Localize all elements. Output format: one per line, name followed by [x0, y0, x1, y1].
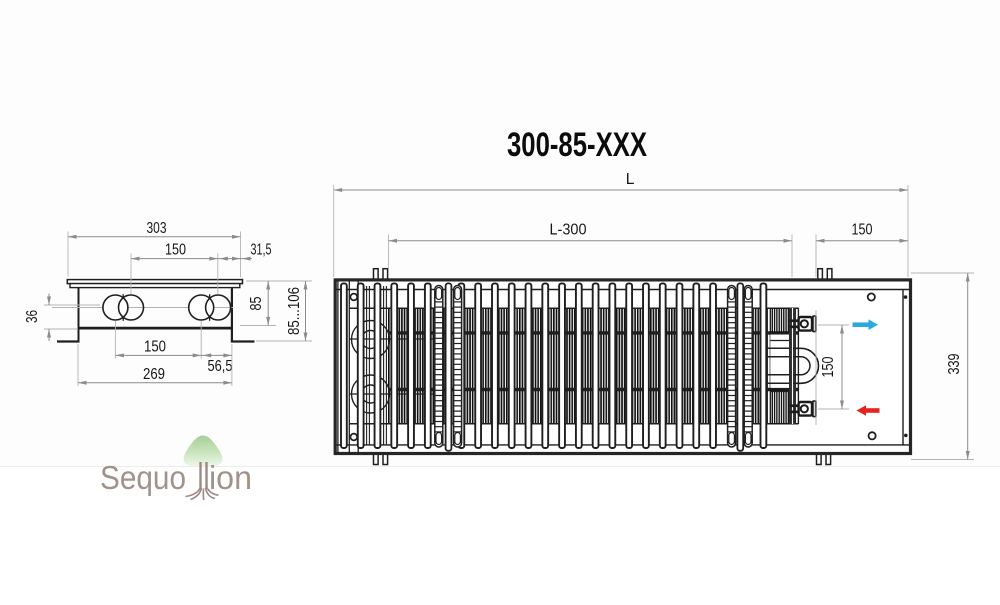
svg-text:L: L: [626, 171, 635, 188]
svg-text:Sequo: Sequo: [100, 459, 186, 496]
svg-text:150: 150: [852, 222, 873, 239]
svg-text:L-300: L-300: [550, 222, 587, 239]
svg-text:85: 85: [248, 297, 265, 311]
svg-text:31,5: 31,5: [251, 242, 272, 259]
svg-text:300-85-XXX: 300-85-XXX: [507, 126, 647, 164]
svg-text:ion: ion: [209, 459, 252, 496]
svg-text:150: 150: [820, 356, 837, 377]
svg-text:150: 150: [165, 242, 186, 259]
svg-text:303: 303: [147, 220, 167, 237]
svg-text:150: 150: [144, 339, 166, 356]
svg-text:85...106: 85...106: [286, 287, 303, 335]
svg-text:269: 269: [143, 366, 165, 383]
svg-text:339: 339: [946, 354, 963, 375]
svg-text:36: 36: [24, 310, 41, 323]
svg-text:56,5: 56,5: [208, 358, 233, 375]
